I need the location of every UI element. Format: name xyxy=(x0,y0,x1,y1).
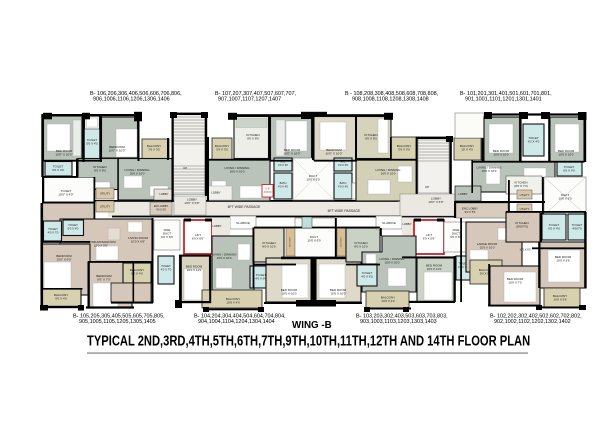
svg-text:UTILITY: UTILITY xyxy=(520,193,530,197)
svg-text:8'0 X 8'0: 8'0 X 8'0 xyxy=(94,169,106,173)
svg-text:15'0 X 10'0: 15'0 X 10'0 xyxy=(217,256,232,260)
svg-text:5'6 X 3'0: 5'6 X 3'0 xyxy=(216,148,228,152)
svg-text:10'0" X 10'0": 10'0" X 10'0" xyxy=(56,153,73,157)
svg-text:906,1006,1106,1206,1306,1406: 906,1006,1106,1206,1306,1406 xyxy=(93,97,170,103)
svg-text:9'0" X 7'0": 9'0" X 7'0" xyxy=(97,278,111,282)
svg-text:15'0 X 10'0: 15'0 X 10'0 xyxy=(385,261,400,265)
svg-text:901,1001,1101,1201,1301,1401: 901,1001,1101,1201,1301,1401 xyxy=(465,97,542,103)
svg-text:16'0 X 10'0: 16'0 X 10'0 xyxy=(482,169,497,173)
svg-text:6'0 X 6'9: 6'0 X 6'9 xyxy=(161,235,173,239)
svg-text:10'0" X 10'0": 10'0" X 10'0" xyxy=(326,152,343,156)
svg-text:SL.ABOVE: SL.ABOVE xyxy=(236,221,250,225)
svg-text:8'0 X 10'0: 8'0 X 10'0 xyxy=(354,245,367,249)
svg-text:905,1005,1105,1205,1305,1405: 905,1005,1105,1205,1305,1405 xyxy=(79,319,156,325)
svg-text:8'0 X 8'0: 8'0 X 8'0 xyxy=(247,137,259,141)
svg-text:LOBBY: LOBBY xyxy=(212,224,221,228)
svg-text:UP: UP xyxy=(183,166,187,170)
svg-text:4'0 X 5'6: 4'0 X 5'6 xyxy=(156,208,166,211)
svg-text:UTILITY: UTILITY xyxy=(100,192,111,196)
svg-text:5'6 X 3'0: 5'6 X 3'0 xyxy=(398,148,410,152)
svg-text:4'0X7'0: 4'0X7'0 xyxy=(572,227,582,231)
svg-text:4'0 X 3'0: 4'0 X 3'0 xyxy=(338,163,348,167)
svg-text:4'0 X 6'0: 4'0 X 6'0 xyxy=(255,277,267,281)
svg-text:10'0" X 10'0": 10'0" X 10'0" xyxy=(109,149,126,153)
svg-text:10'0 X 5'6: 10'0 X 5'6 xyxy=(553,298,566,302)
svg-text:10'0 X 7'0: 10'0 X 7'0 xyxy=(508,281,521,285)
svg-text:WING -B: WING -B xyxy=(292,320,332,331)
svg-text:16'0 X 10'0: 16'0 X 10'0 xyxy=(230,170,245,174)
svg-text:10' X 4'0: 10' X 4'0 xyxy=(461,148,473,152)
svg-text:8'0 X 10'0: 8'0 X 10'0 xyxy=(262,245,275,249)
svg-text:6'0 X 4'0: 6'0 X 4'0 xyxy=(563,169,575,173)
svg-text:10'0 X 11'0: 10'0 X 11'0 xyxy=(427,267,442,271)
svg-text:10'0 X 10'0: 10'0 X 10'0 xyxy=(559,153,574,157)
svg-text:9'0 X 5'6: 9'0 X 5'6 xyxy=(465,210,476,214)
svg-text:CUT OUT: CUT OUT xyxy=(341,236,343,246)
svg-text:(8'0X7'0): (8'0X7'0) xyxy=(516,225,528,229)
svg-text:10'0 X 4'0: 10'0 X 4'0 xyxy=(226,301,239,305)
svg-text:LOBBY: LOBBY xyxy=(211,191,220,195)
svg-text:907,1007,1107,1207,1407: 907,1007,1107,1207,1407 xyxy=(218,97,281,103)
svg-text:10'0" X 4'0": 10'0" X 4'0" xyxy=(58,193,73,197)
svg-text:10'0 X 5'6: 10'0 X 5'6 xyxy=(556,259,569,263)
svg-text:10'0" X 6'9": 10'0" X 6'9" xyxy=(428,200,443,204)
svg-text:UTILITY: UTILITY xyxy=(520,207,530,211)
svg-text:10'0" X 10'0": 10'0" X 10'0" xyxy=(284,152,301,156)
svg-text:10'0" X 6'9": 10'0" X 6'9" xyxy=(184,201,199,205)
svg-text:4'0 X 4'0: 4'0 X 4'0 xyxy=(338,184,348,188)
svg-text:(8'0 X 7'0): (8'0 X 7'0) xyxy=(514,184,528,188)
svg-text:6'0 X 5'6": 6'0 X 5'6" xyxy=(192,237,205,241)
svg-text:6'0 X 4'0: 6'0 X 4'0 xyxy=(52,168,64,172)
svg-text:LOBBY: LOBBY xyxy=(159,192,168,196)
svg-text:10'0 X 6'9": 10'0 X 6'9" xyxy=(131,240,145,244)
svg-text:4'0 X 6'0: 4'0 X 6'0 xyxy=(361,275,373,279)
svg-text:5'0 X 4'0: 5'0 X 4'0 xyxy=(86,142,98,146)
svg-text:10'0 X 10'0: 10'0 X 10'0 xyxy=(494,153,509,157)
svg-text:CUT OUT: CUT OUT xyxy=(290,236,292,246)
svg-text:10'0 X 4'0: 10'0 X 4'0 xyxy=(381,299,394,303)
svg-text:4'0 X 3'0: 4'0 X 3'0 xyxy=(278,163,288,167)
svg-text:6FT WIDE PASSAGE: 6FT WIDE PASSAGE xyxy=(328,209,361,213)
svg-text:TYPICAL 2ND,3RD,4TH,5TH,6TH,7T: TYPICAL 2ND,3RD,4TH,5TH,6TH,7TH,9TH,10TH… xyxy=(87,332,530,349)
svg-text:4'0X3'0: 4'0X3'0 xyxy=(264,191,272,194)
svg-text:15'0 X 5'6": 15'0 X 5'6" xyxy=(94,244,108,248)
svg-text:10'0 X 6'9: 10'0 X 6'9 xyxy=(306,178,319,182)
svg-text:902,1002,1102,1202,1302,1402: 902,1002,1102,1202,1302,1402 xyxy=(494,319,571,325)
svg-text:6'0 X 5'6": 6'0 X 5'6" xyxy=(423,237,436,241)
svg-text:UP: UP xyxy=(425,185,429,189)
svg-text:6FT WIDE PASSAGE: 6FT WIDE PASSAGE xyxy=(228,205,261,209)
svg-text:10'0 X 11'0: 10'0 X 11'0 xyxy=(187,268,202,272)
svg-text:9'0 X 4'0: 9'0 X 4'0 xyxy=(55,297,67,301)
svg-text:7'6 X 3'0: 7'6 X 3'0 xyxy=(148,148,160,152)
svg-text:UTILITY: UTILITY xyxy=(100,205,111,209)
svg-text:10'0" X 6'0": 10'0" X 6'0" xyxy=(56,258,71,262)
svg-text:SL.ABOVE: SL.ABOVE xyxy=(382,221,396,225)
svg-text:LOBBY: LOBBY xyxy=(402,222,411,226)
svg-text:LOBBY: LOBBY xyxy=(458,192,467,196)
svg-text:6'0 X 4'0: 6'0 X 4'0 xyxy=(68,226,79,230)
svg-text:4'0 X 7'0: 4'0 X 7'0 xyxy=(161,267,172,271)
svg-text:10'0 X 10'0: 10'0 X 10'0 xyxy=(282,292,297,296)
svg-text:903,1003,1103,1203,1303,1403: 903,1003,1103,1203,1303,1403 xyxy=(360,319,437,325)
svg-text:16'0 X 10'0: 16'0 X 10'0 xyxy=(130,172,145,176)
svg-text:6'0 X 4'0: 6'0 X 4'0 xyxy=(548,227,560,231)
svg-text:4'0 X 7'0: 4'0 X 7'0 xyxy=(48,230,59,234)
svg-text:904,1004,1104,1204,1304,1404: 904,1004,1104,1204,1304,1404 xyxy=(198,319,275,325)
svg-text:10'0 X 6'9: 10'0 X 6'9 xyxy=(307,239,320,243)
svg-text:10'1 X 6'0: 10'1 X 6'0 xyxy=(519,248,531,252)
svg-text:16'0 X 10'0: 16'0 X 10'0 xyxy=(381,172,396,176)
svg-text:4'0 X 4'0: 4'0 X 4'0 xyxy=(278,184,288,188)
svg-text:908,1008,1108,1208,1308,1408: 908,1008,1108,1208,1308,1408 xyxy=(352,97,429,103)
svg-text:15'0 X 10'0: 15'0 X 10'0 xyxy=(480,246,495,250)
svg-text:10'0 X 6'0: 10'0 X 6'0 xyxy=(558,197,571,201)
svg-text:6'2 X 4'0: 6'2 X 4'0 xyxy=(528,140,540,144)
svg-text:8'0 X 8'0: 8'0 X 8'0 xyxy=(365,137,377,141)
svg-text:10'0 X 10'0: 10'0 X 10'0 xyxy=(331,292,346,296)
